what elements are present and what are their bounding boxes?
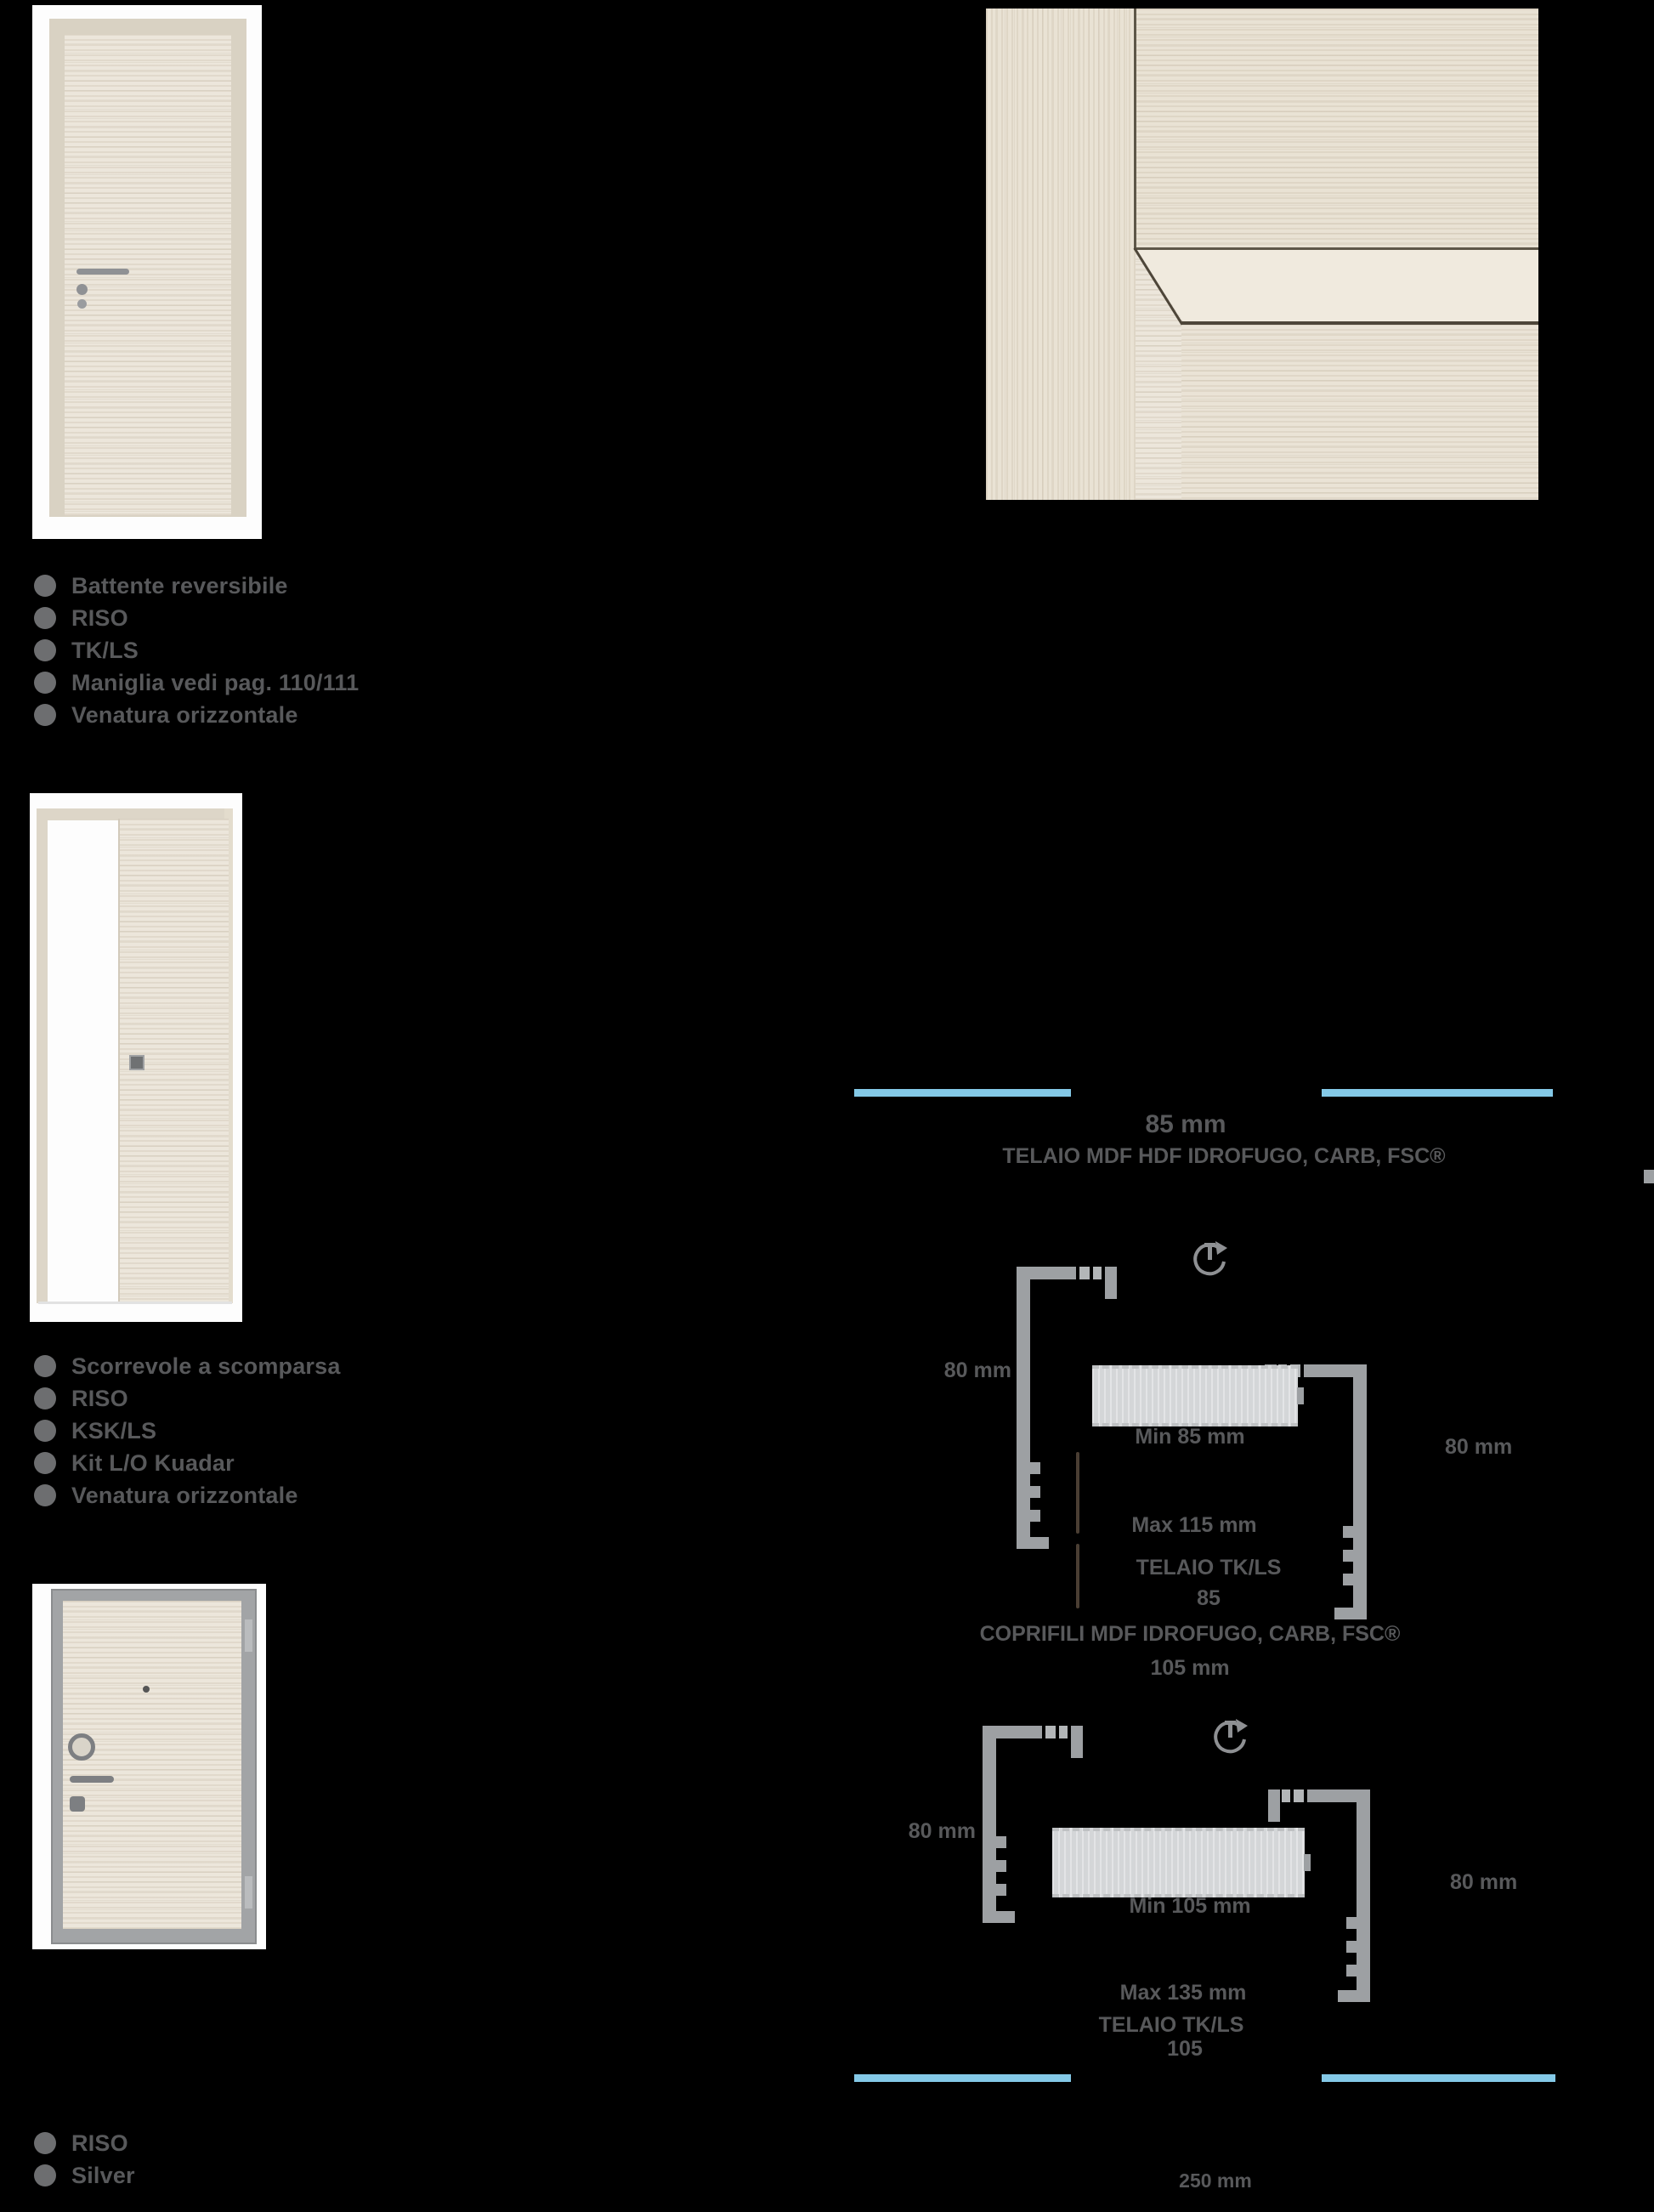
feature-label: Maniglia vedi pag. 110/111 xyxy=(71,670,359,696)
feature-label: Venatura orizzontale xyxy=(71,1483,298,1509)
accent-rule-bottom-left xyxy=(854,2074,1071,2082)
bullet-icon xyxy=(34,639,56,661)
feature-item: RISO xyxy=(34,1382,341,1415)
product-photo-hinged-door xyxy=(32,5,262,539)
feature-item: RISO xyxy=(34,602,359,634)
door-handle-rosette xyxy=(76,284,88,295)
floor-shadow xyxy=(38,1302,232,1304)
feature-label: KSK/LS xyxy=(71,1418,156,1444)
lock-knob xyxy=(70,1796,85,1812)
feature-item: KSK/LS xyxy=(34,1415,341,1447)
frame-stop-moulding xyxy=(1136,249,1538,324)
frame-material-heading: TELAIO MDF HDF IDROFUGO, CARB, FSC® xyxy=(1002,1144,1445,1169)
door-gap-line xyxy=(1181,321,1538,325)
frame-width-heading: 85 mm xyxy=(1145,1110,1226,1139)
dim-right-80mm: 80 mm xyxy=(1445,1435,1512,1460)
feature-label: RISO xyxy=(71,1386,128,1412)
bullet-icon xyxy=(34,1452,56,1474)
frame-profile-right xyxy=(1268,1789,1370,2019)
feature-label: TK/LS xyxy=(71,638,139,664)
product-photo-security-door xyxy=(32,1584,266,1949)
security-door-leaf xyxy=(63,1601,241,1929)
bullet-icon xyxy=(34,575,56,597)
lock-cylinder xyxy=(68,1733,95,1761)
flush-handle xyxy=(129,1055,144,1070)
bullet-icon xyxy=(34,1355,56,1377)
dim-left-80mm: 80 mm xyxy=(944,1358,1011,1383)
dim-wall-min: Min 105 mm xyxy=(1129,1894,1250,1919)
dim-wall-max: Max 115 mm xyxy=(1131,1513,1256,1538)
feature-item: Venatura orizzontale xyxy=(34,1479,341,1512)
feature-item: Scorrevole a scomparsa xyxy=(34,1350,341,1382)
bullet-icon xyxy=(34,607,56,629)
feature-label: Venatura orizzontale xyxy=(71,702,298,729)
bullet-icon xyxy=(34,1420,56,1442)
feature-label: Silver xyxy=(71,2163,135,2189)
frame-name-label: TELAIO TK/LS xyxy=(1136,1556,1282,1580)
adjustment-screw-icon xyxy=(1207,1714,1253,1760)
dim-left-80mm: 80 mm xyxy=(909,1819,976,1844)
bullet-icon xyxy=(34,672,56,694)
frame-size-label: 105 xyxy=(1167,2037,1203,2062)
frame-head-casing xyxy=(1136,9,1538,249)
door-keyhole xyxy=(77,299,87,309)
coprifili-leader-line xyxy=(1076,1544,1079,1608)
doorway-left-jamb xyxy=(37,808,48,1303)
feature-item: Silver xyxy=(34,2159,135,2192)
jamb-seam-line xyxy=(1134,9,1136,250)
peephole xyxy=(143,1686,150,1693)
page-edge-mark xyxy=(1644,1170,1654,1183)
hinge-top xyxy=(245,1619,252,1652)
bullet-icon xyxy=(34,2132,56,2154)
wall-section xyxy=(1092,1365,1298,1426)
dim-wall-min: Min 85 mm xyxy=(1135,1425,1244,1449)
bullet-icon xyxy=(34,704,56,726)
bullet-icon xyxy=(34,2164,56,2186)
product-photo-sliding-door xyxy=(30,793,242,1322)
frame-size-label: 85 xyxy=(1197,1586,1221,1611)
feature-label: Scorrevole a scomparsa xyxy=(71,1353,341,1380)
coprifili-leader-line xyxy=(1076,1452,1079,1534)
feature-label: Battente reversibile xyxy=(71,573,288,599)
wall-end-tab xyxy=(1304,1854,1311,1871)
catalog-page: Battente reversibile RISO TK/LS Maniglia… xyxy=(0,0,1654,2212)
door-leaf-corner xyxy=(1181,324,1538,500)
hinge-bottom xyxy=(245,1876,252,1909)
accent-rule-top-left xyxy=(854,1089,1071,1097)
frame-name-label: TELAIO TK/LS xyxy=(1099,2013,1244,2038)
feature-item: RISO xyxy=(34,2127,135,2159)
feature-label: RISO xyxy=(71,605,128,632)
dim-right-80mm: 80 mm xyxy=(1450,1870,1517,1895)
feature-label: Kit L/O Kuadar xyxy=(71,1450,235,1477)
feature-label: RISO xyxy=(71,2130,128,2157)
feature-item: Maniglia vedi pag. 110/111 xyxy=(34,666,359,699)
feature-item: Kit L/O Kuadar xyxy=(34,1447,341,1479)
accent-rule-top-right xyxy=(1322,1089,1553,1097)
dim-wall-max: Max 135 mm xyxy=(1120,1981,1247,2005)
bottom-size-label: 250 mm xyxy=(1179,2169,1252,2192)
door-handle-lever xyxy=(76,269,129,275)
bullet-icon xyxy=(34,1484,56,1506)
coprifili-material-label: COPRIFILI MDF IDROFUGO, CARB, FSC® xyxy=(980,1622,1401,1647)
feature-list-security-door: RISO Silver xyxy=(34,2127,135,2192)
security-handle-lever xyxy=(70,1776,114,1783)
frame-jamb-casing xyxy=(986,9,1136,500)
adjustment-screw-icon xyxy=(1187,1236,1232,1282)
detail-photo-frame-corner xyxy=(986,9,1538,500)
coprifili-size-label: 105 mm xyxy=(1150,1656,1229,1681)
wall-section xyxy=(1052,1828,1305,1897)
head-seam-line xyxy=(1136,247,1538,250)
feature-item: Battente reversibile xyxy=(34,570,359,602)
door-leaf xyxy=(65,34,231,515)
feature-list-hinged-door: Battente reversibile RISO TK/LS Maniglia… xyxy=(34,570,359,731)
feature-list-sliding-door: Scorrevole a scomparsa RISO KSK/LS Kit L… xyxy=(34,1350,341,1512)
feature-item: Venatura orizzontale xyxy=(34,699,359,731)
accent-rule-bottom-right xyxy=(1322,2074,1555,2082)
bullet-icon xyxy=(34,1387,56,1409)
wall-end-tab xyxy=(1297,1387,1304,1404)
feature-item: TK/LS xyxy=(34,634,359,666)
